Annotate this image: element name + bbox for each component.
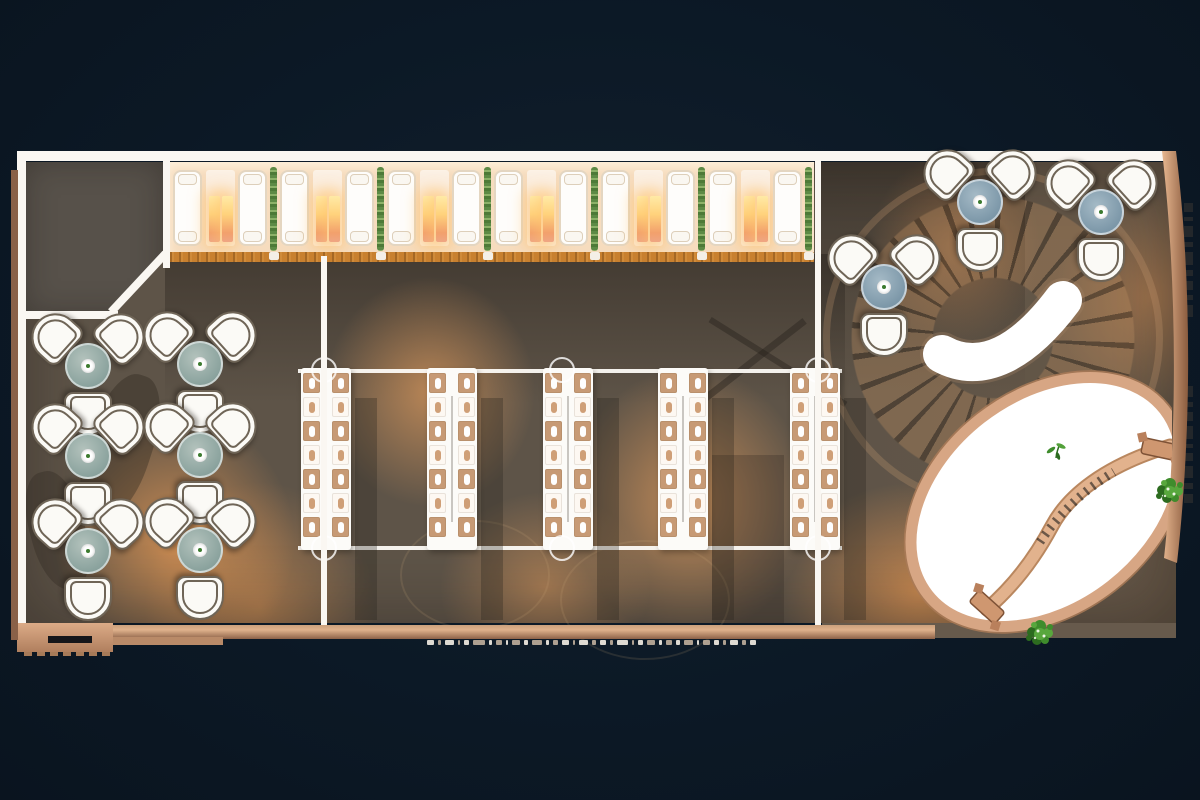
entry-step bbox=[113, 637, 223, 645]
left-edge-trim bbox=[11, 170, 18, 640]
doormat bbox=[48, 636, 92, 643]
terrace-overlay bbox=[0, 0, 1200, 800]
floor-plan-stage bbox=[0, 0, 1200, 800]
